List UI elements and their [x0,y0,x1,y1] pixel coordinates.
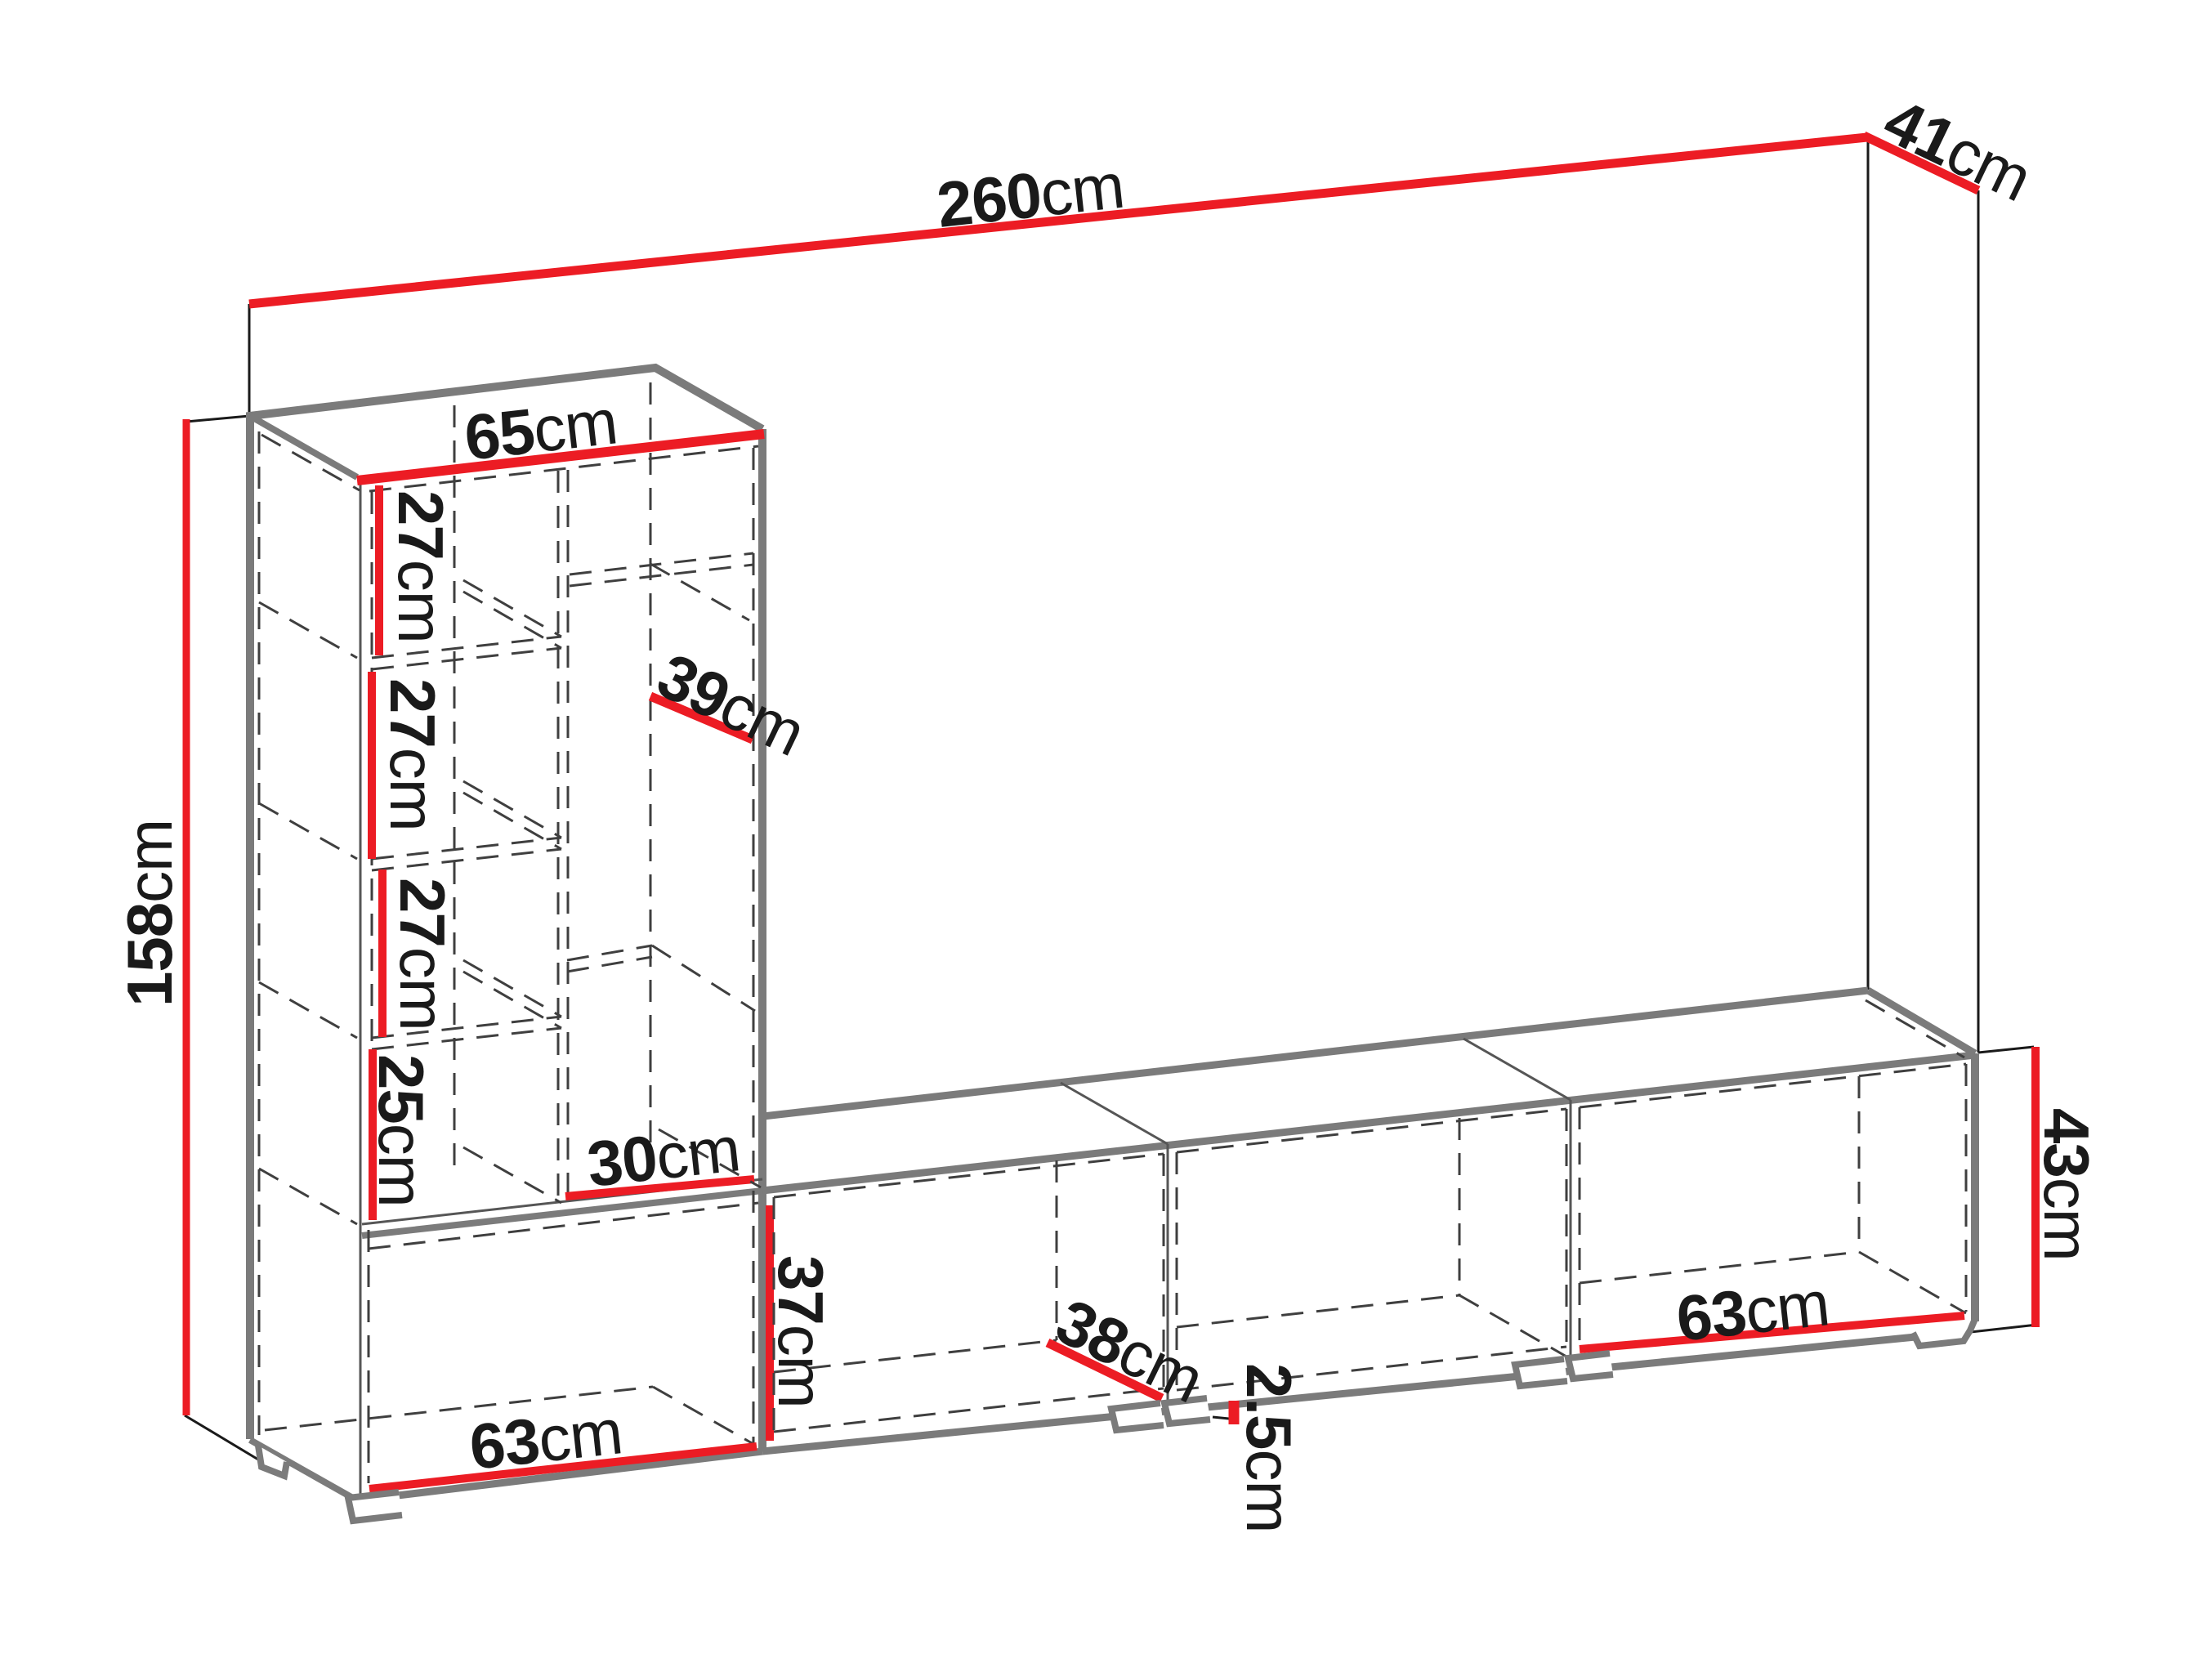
svg-text:43cm: 43cm [2031,1108,2103,1261]
svg-text:37cm: 37cm [765,1255,837,1408]
svg-text:27cm: 27cm [387,878,458,1030]
svg-text:158cm: 158cm [114,820,185,1007]
svg-text:27cm: 27cm [377,678,449,831]
svg-text:25cm: 25cm [365,1054,437,1207]
svg-text:27cm: 27cm [385,490,457,643]
svg-text:2.5cm: 2.5cm [1233,1363,1305,1532]
